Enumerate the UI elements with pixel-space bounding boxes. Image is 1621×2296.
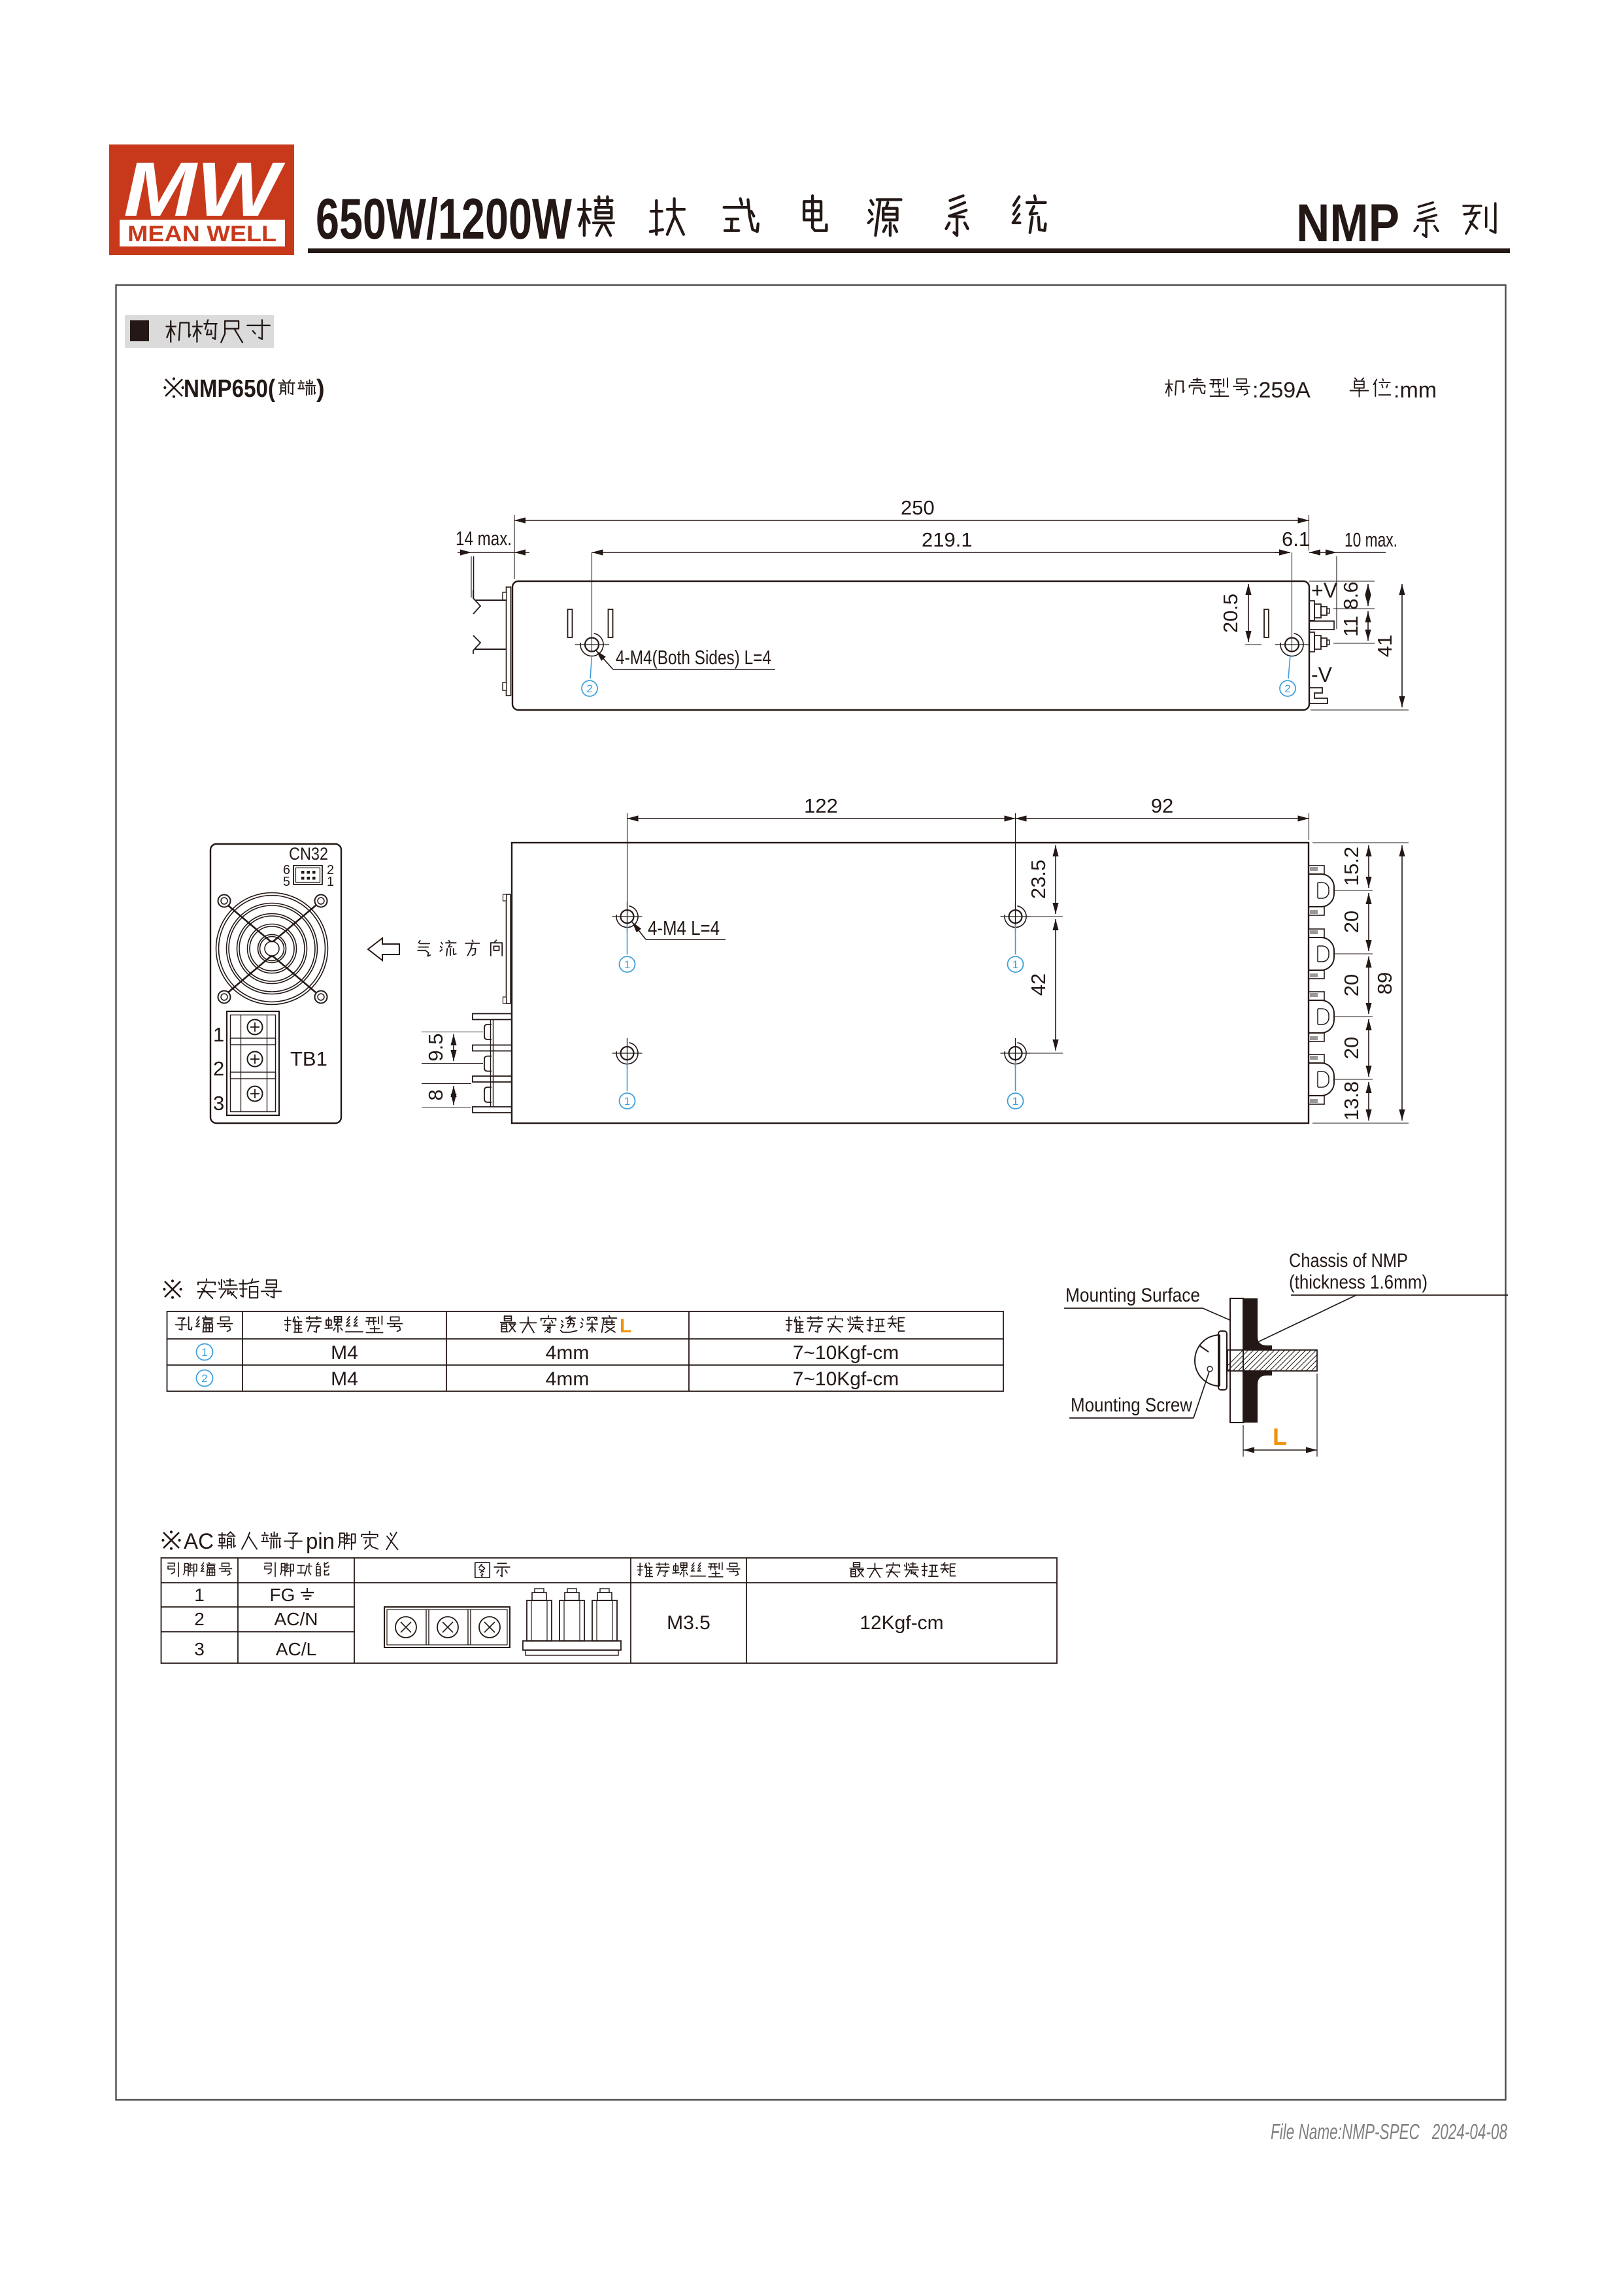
svg-text:M4: M4 [331, 1368, 358, 1390]
svg-text:1: 1 [1012, 1095, 1018, 1107]
svg-text:File Name:NMP-SPEC 2024-04-0: File Name:NMP-SPEC 2024-04-08 [1271, 2119, 1507, 2144]
svg-text:1: 1 [1012, 958, 1018, 971]
svg-text:650W/1200W: 650W/1200W [316, 186, 572, 251]
svg-text:42: 42 [1027, 973, 1050, 996]
svg-text:9.5: 9.5 [424, 1033, 447, 1061]
svg-text:2: 2 [213, 1057, 224, 1080]
svg-text:8.6: 8.6 [1339, 581, 1362, 609]
svg-text:2: 2 [201, 1372, 207, 1385]
svg-text:1: 1 [201, 1346, 207, 1359]
svg-text:5: 5 [283, 875, 290, 889]
svg-text:8: 8 [424, 1089, 447, 1100]
svg-text:4mm: 4mm [546, 1368, 590, 1390]
svg-text:12Kgf-cm: 12Kgf-cm [860, 1612, 943, 1634]
svg-text:+V: +V [1311, 579, 1338, 602]
svg-text:): ) [316, 375, 325, 403]
svg-text:20: 20 [1340, 974, 1363, 996]
svg-text::259A: :259A [1252, 378, 1311, 403]
svg-text:Mounting Screw: Mounting Screw [1071, 1394, 1192, 1416]
svg-text:4mm: 4mm [546, 1342, 590, 1364]
svg-text:1: 1 [194, 1585, 205, 1605]
svg-text:4-M4(Both Sides) L=4: 4-M4(Both Sides) L=4 [616, 646, 771, 669]
svg-text:14 max.: 14 max. [456, 527, 512, 550]
svg-text:6.1: 6.1 [1282, 528, 1310, 550]
svg-text:15.2: 15.2 [1340, 847, 1363, 886]
svg-text:89: 89 [1373, 972, 1396, 994]
svg-text:2: 2 [1284, 683, 1290, 695]
svg-text:1: 1 [624, 958, 630, 971]
svg-text:pin: pin [306, 1529, 335, 1554]
svg-text:FG: FG [270, 1585, 295, 1605]
svg-text:(thickness 1.6mm): (thickness 1.6mm) [1289, 1272, 1428, 1293]
svg-text:NMP: NMP [1296, 194, 1399, 253]
svg-text:20.5: 20.5 [1219, 594, 1242, 633]
svg-text:13.8: 13.8 [1340, 1081, 1363, 1121]
svg-text:20: 20 [1340, 911, 1363, 933]
svg-text:122: 122 [804, 794, 838, 817]
svg-text:3: 3 [194, 1639, 205, 1659]
svg-text:20: 20 [1340, 1037, 1363, 1059]
svg-text:3: 3 [213, 1092, 224, 1115]
svg-text:MEAN WELL: MEAN WELL [127, 222, 276, 246]
svg-text:Chassis of NMP: Chassis of NMP [1289, 1250, 1408, 1272]
svg-text:11: 11 [1339, 616, 1362, 637]
svg-text:L: L [1273, 1423, 1287, 1450]
svg-text:2: 2 [586, 683, 592, 695]
svg-text:AC: AC [184, 1529, 214, 1554]
svg-text::mm: :mm [1394, 378, 1437, 403]
svg-text:1: 1 [213, 1023, 224, 1046]
svg-text:219.1: 219.1 [922, 528, 973, 551]
svg-text:92: 92 [1151, 794, 1173, 817]
svg-text:4-M4 L=4: 4-M4 L=4 [648, 917, 720, 939]
svg-text:CN32: CN32 [289, 844, 328, 864]
svg-text:1: 1 [327, 875, 334, 889]
svg-text:250: 250 [901, 496, 935, 519]
svg-text:M4: M4 [331, 1342, 358, 1364]
svg-text:L: L [620, 1315, 631, 1337]
svg-text:7~10Kgf-cm: 7~10Kgf-cm [793, 1368, 899, 1390]
svg-text:2: 2 [194, 1609, 205, 1629]
svg-text:AC/L: AC/L [276, 1639, 316, 1659]
svg-text:23.5: 23.5 [1027, 860, 1050, 899]
svg-text:10 max.: 10 max. [1345, 528, 1397, 551]
svg-text:7~10Kgf-cm: 7~10Kgf-cm [793, 1342, 899, 1364]
svg-text:1: 1 [624, 1095, 630, 1107]
svg-text:TB1: TB1 [290, 1047, 327, 1070]
svg-text:M3.5: M3.5 [667, 1612, 710, 1634]
svg-text:-V: -V [1311, 663, 1333, 686]
svg-text:41: 41 [1373, 635, 1396, 657]
svg-text:Mounting Surface: Mounting Surface [1065, 1285, 1200, 1306]
svg-text:AC/N: AC/N [275, 1609, 318, 1629]
svg-text:NMP650(: NMP650( [184, 375, 275, 403]
